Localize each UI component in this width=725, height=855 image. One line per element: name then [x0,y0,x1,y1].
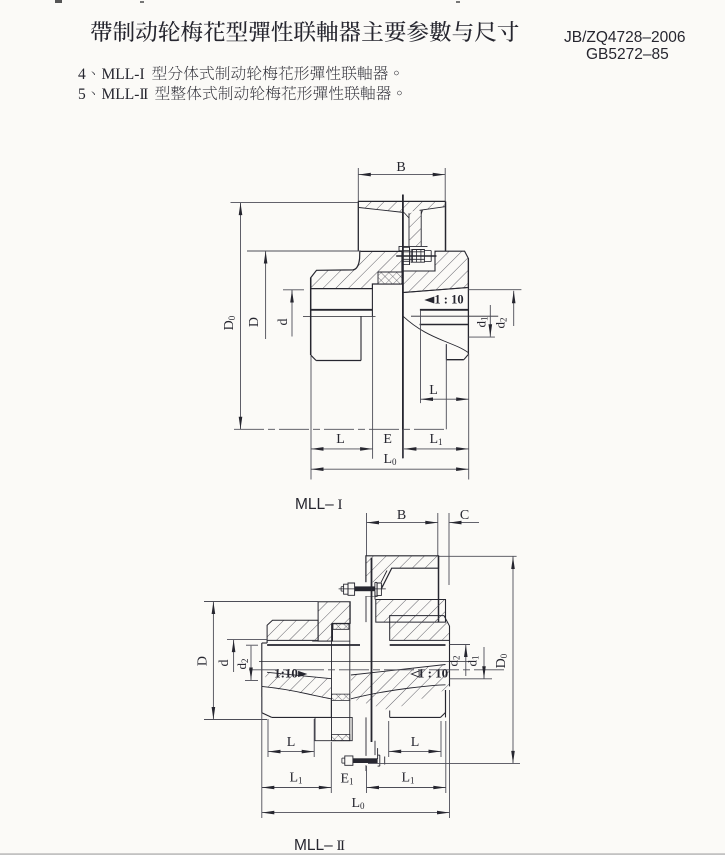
svg-text:1:10: 1:10 [274,666,298,681]
svg-text:MLL-: MLL- [102,86,140,103]
svg-text:D: D [196,656,211,666]
svg-text:L: L [287,735,296,750]
svg-text:B: B [397,508,406,523]
svg-text:GB5272–85: GB5272–85 [586,46,669,63]
svg-text:B: B [396,160,405,175]
svg-text:MLL-: MLL- [102,66,140,83]
svg-text:MLL–: MLL– [294,837,333,854]
svg-text:1 : 10: 1 : 10 [434,293,463,307]
svg-text:4: 4 [78,66,86,83]
svg-text:C: C [460,508,469,523]
svg-text:1 : 10: 1 : 10 [418,666,448,681]
svg-text:D: D [247,317,262,327]
svg-text:d: d [217,660,232,667]
svg-text:JB/ZQ4728–2006: JB/ZQ4728–2006 [564,29,686,46]
svg-text:MLL–: MLL– [295,496,334,513]
svg-text:d: d [276,319,291,326]
svg-text:L: L [411,735,420,750]
svg-text:L: L [336,432,345,447]
svg-text:I: I [140,66,145,83]
svg-text:5: 5 [78,86,86,103]
svg-text:I: I [338,497,343,513]
svg-text:E: E [383,432,392,447]
svg-text:L: L [429,383,438,398]
